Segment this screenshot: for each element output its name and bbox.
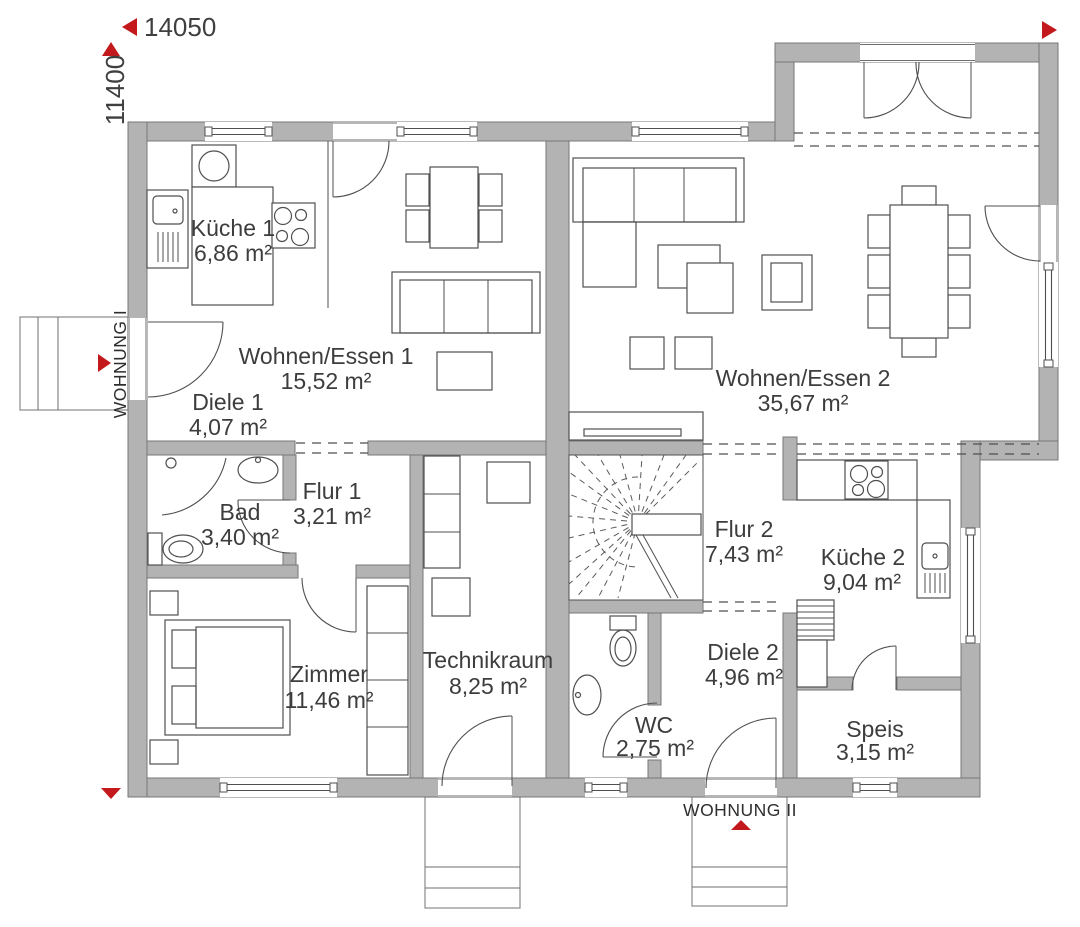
wall-segment — [128, 122, 147, 797]
bedroom-furniture — [150, 586, 408, 775]
party-wall — [546, 141, 569, 778]
wall-segment — [783, 437, 797, 500]
living1-furniture — [392, 167, 540, 390]
wall-segment — [283, 455, 296, 500]
dimension-arrow-up-icon — [102, 42, 120, 56]
dimension-arrow-left-icon — [122, 18, 137, 36]
cooktop-icon — [845, 461, 888, 499]
room-label-diele1-area: 4,07 m² — [189, 414, 267, 440]
wall-segment — [356, 565, 410, 578]
washbasin-icon — [573, 675, 601, 715]
dining-table-icon — [430, 167, 478, 248]
room-label-kueche1-name: Küche 1 — [191, 215, 275, 241]
room-label-kueche2-area: 9,04 m² — [823, 569, 901, 595]
hall2-fixtures — [797, 600, 834, 687]
room-label-diele1-name: Diele 1 — [192, 389, 264, 415]
room-label-technikraum-area: 8,25 m² — [449, 673, 527, 699]
wall-segment — [648, 760, 661, 778]
dimension-arrow-right-icon — [1042, 21, 1057, 39]
wall-segment — [410, 455, 423, 778]
room-label-kueche1-area: 6,86 m² — [194, 240, 272, 266]
room-label-technikraum-name: Technikraum — [423, 647, 553, 673]
door-speis — [852, 646, 896, 690]
entrance-label-apartment2: WOHNUNG II — [683, 800, 797, 820]
wc-fixtures — [573, 616, 636, 715]
room-label-diele2-name: Diele 2 — [707, 639, 779, 665]
wall-segment — [648, 613, 661, 705]
washbasin-icon — [238, 457, 278, 483]
entrance-label-apartment1: WOHNUNG I — [110, 310, 130, 419]
room-label-diele2-area: 4,96 m² — [705, 664, 783, 690]
room-label-wohnen1-area: 15,52 m² — [281, 368, 372, 394]
door-zimmer — [302, 578, 356, 632]
dimension-height: 11400 — [100, 42, 130, 799]
wall-segment — [147, 441, 295, 455]
room-label-flur2-area: 7,43 m² — [705, 541, 783, 567]
wall-segment — [368, 441, 546, 455]
room-label-wohnen2-name: Wohnen/Essen 2 — [716, 365, 891, 391]
technical-room-fixtures — [424, 456, 530, 616]
cooktop-icon — [272, 203, 315, 248]
dimension-arrow-down-icon — [101, 788, 121, 799]
room-label-flur1-name: Flur 1 — [303, 478, 362, 504]
entrance-platform-south-technik — [425, 797, 520, 908]
sofa-icon — [392, 272, 540, 333]
dimension-width: 14050 — [122, 12, 1057, 42]
staircase — [569, 455, 703, 600]
shower-icon — [162, 458, 226, 515]
room-label-wohnen1-name: Wohnen/Essen 1 — [239, 343, 414, 369]
room-label-wohnen2-area: 35,67 m² — [758, 390, 849, 416]
coffee-table-icon — [437, 352, 492, 390]
room-label-zimmer-area: 11,46 m² — [284, 687, 373, 713]
room-label-flur2-name: Flur 2 — [715, 516, 774, 542]
room-label-wc-area: 2,75 m² — [616, 735, 694, 761]
bed-icon — [165, 620, 290, 735]
wall-segment — [147, 565, 298, 578]
wall-segment — [897, 677, 961, 690]
room-label-bad-area: 3,40 m² — [201, 524, 279, 550]
dimension-height-label: 11400 — [100, 55, 130, 125]
wall-segment — [569, 600, 703, 613]
wall-segment — [783, 613, 797, 778]
room-label-kueche2-name: Küche 2 — [821, 544, 905, 570]
dining-table-icon — [890, 205, 948, 338]
room-label-bad-name: Bad — [220, 499, 261, 525]
floor-plan-canvas: Küche 1 6,86 m² Wohnen/Essen 1 15,52 m² … — [0, 0, 1080, 922]
dimension-width-label: 14050 — [144, 12, 216, 42]
wall-segment — [569, 441, 703, 455]
room-label-speis-area: 3,15 m² — [836, 739, 914, 765]
floor-plan: Küche 1 6,86 m² Wohnen/Essen 1 15,52 m² … — [0, 0, 1080, 922]
room-label-flur1-area: 3,21 m² — [293, 503, 371, 529]
room-label-zimmer-name: Zimmer — [290, 661, 368, 687]
